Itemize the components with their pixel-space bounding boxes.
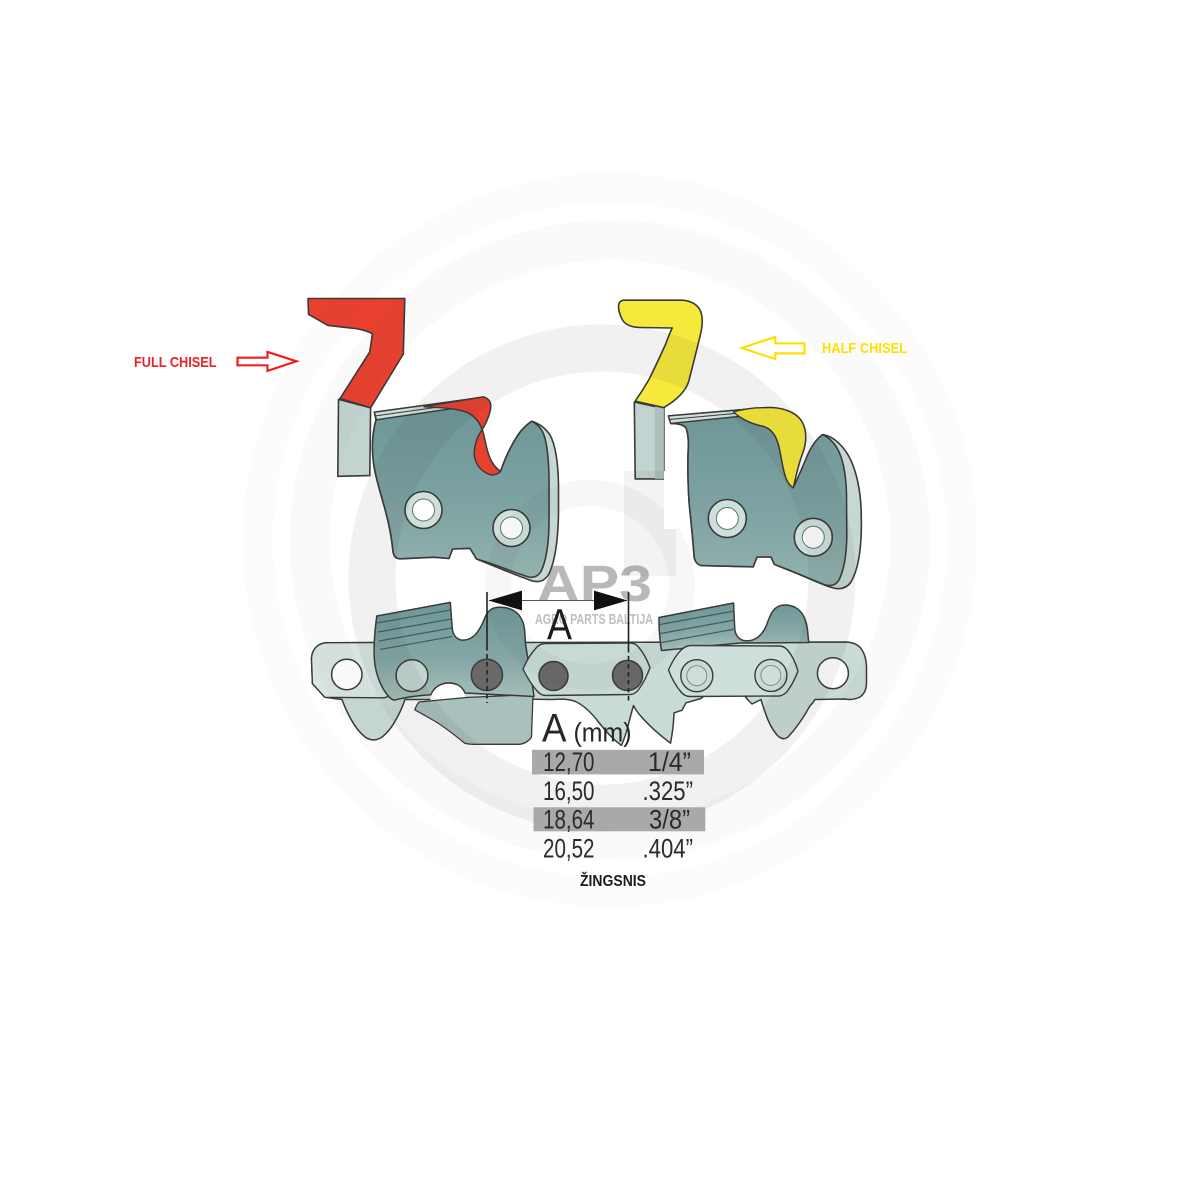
svg-text:12,70: 12,70	[543, 747, 595, 777]
svg-text:3/8”: 3/8”	[649, 805, 690, 835]
svg-text:(mm): (mm)	[574, 718, 632, 748]
svg-text:.404”: .404”	[643, 833, 694, 863]
svg-text:A: A	[542, 707, 567, 751]
svg-text:FULL CHISEL: FULL CHISEL	[134, 354, 217, 371]
svg-text:A: A	[547, 601, 573, 650]
svg-text:20,52: 20,52	[543, 833, 595, 863]
svg-text:16,50: 16,50	[543, 776, 595, 806]
svg-text:1/4”: 1/4”	[648, 747, 691, 777]
svg-text:.325”: .325”	[643, 776, 694, 806]
svg-text:ŽINGSNIS: ŽINGSNIS	[580, 872, 646, 890]
svg-text:HALF CHISEL: HALF CHISEL	[822, 340, 907, 357]
svg-text:18,64: 18,64	[543, 805, 595, 835]
